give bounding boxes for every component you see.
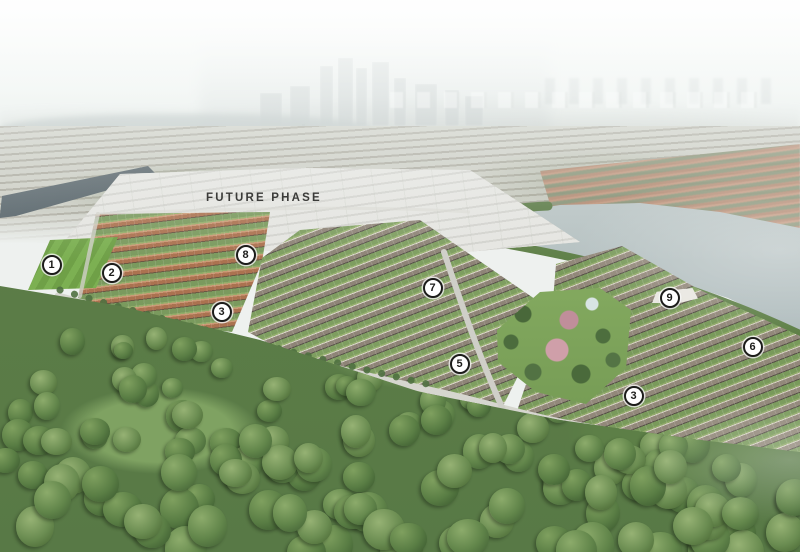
map-marker-1: 1 <box>42 255 62 275</box>
map-marker-3: 3 <box>212 302 232 322</box>
masterplan-aerial-rendering: FUTURE PHASE 123356789 <box>0 0 800 552</box>
map-marker-6: 6 <box>743 337 763 357</box>
map-marker-7: 7 <box>423 278 443 298</box>
map-marker-5: 5 <box>450 354 470 374</box>
map-marker-2: 2 <box>102 263 122 283</box>
map-marker-8: 8 <box>236 245 256 265</box>
marker-layer: 123356789 <box>0 0 800 552</box>
map-marker-9: 9 <box>660 288 680 308</box>
map-marker-3: 3 <box>624 386 644 406</box>
